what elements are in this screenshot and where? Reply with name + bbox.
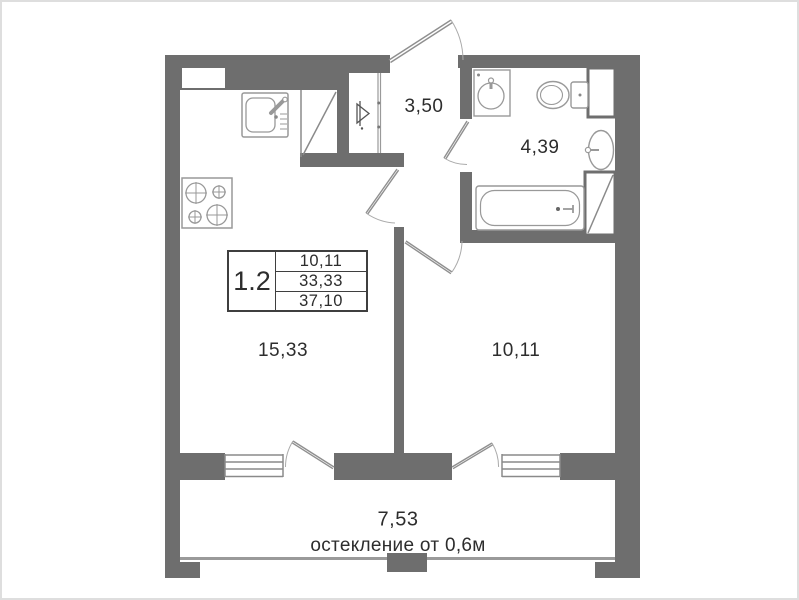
bedroom-area-label: 10,11 — [492, 340, 541, 362]
balcony-door-left — [285, 441, 334, 469]
kitchen-door — [366, 169, 399, 223]
bathroom-door — [444, 121, 469, 165]
wall-niche — [182, 68, 225, 88]
stove — [182, 178, 232, 228]
balcony-door-right — [452, 443, 499, 469]
washbasin — [474, 70, 510, 116]
window-left — [225, 454, 283, 477]
vent-shaft-bathroom-bottom — [585, 172, 615, 235]
hallway-area-label: 3,50 — [405, 96, 444, 118]
living-area-value: 10,11 — [276, 252, 366, 271]
window-right — [502, 454, 560, 477]
vent-shaft-kitchen — [301, 90, 336, 157]
wardrobe-niche — [377, 73, 380, 153]
vent-shaft-bathroom-top — [588, 68, 615, 117]
walls — [165, 55, 640, 578]
bathtub — [476, 186, 584, 230]
meter-symbol — [357, 101, 369, 130]
unit-number: 1.2 — [229, 252, 276, 310]
bedroom-door — [405, 241, 462, 274]
balcony-glazing-note: остекление от 0,6м — [310, 535, 485, 557]
entrance-door — [389, 20, 463, 63]
toilet — [537, 82, 588, 109]
usable-area-value: 33,33 — [276, 271, 366, 291]
kitchen-living-area-label: 15,33 — [258, 340, 308, 362]
kitchen-sink — [242, 93, 288, 137]
title-block: 1.2 10,11 33,33 37,10 — [227, 250, 368, 312]
bathroom-area-label: 4,39 — [521, 137, 560, 159]
side-sink — [585, 131, 613, 170]
floor-plan-page: 3,50 4,39 15,33 10,11 7,53 остекление от… — [0, 0, 799, 600]
total-area-value: 37,10 — [276, 291, 366, 311]
title-block-values: 10,11 33,33 37,10 — [276, 252, 366, 310]
balcony-area-label: 7,53 — [378, 509, 419, 532]
